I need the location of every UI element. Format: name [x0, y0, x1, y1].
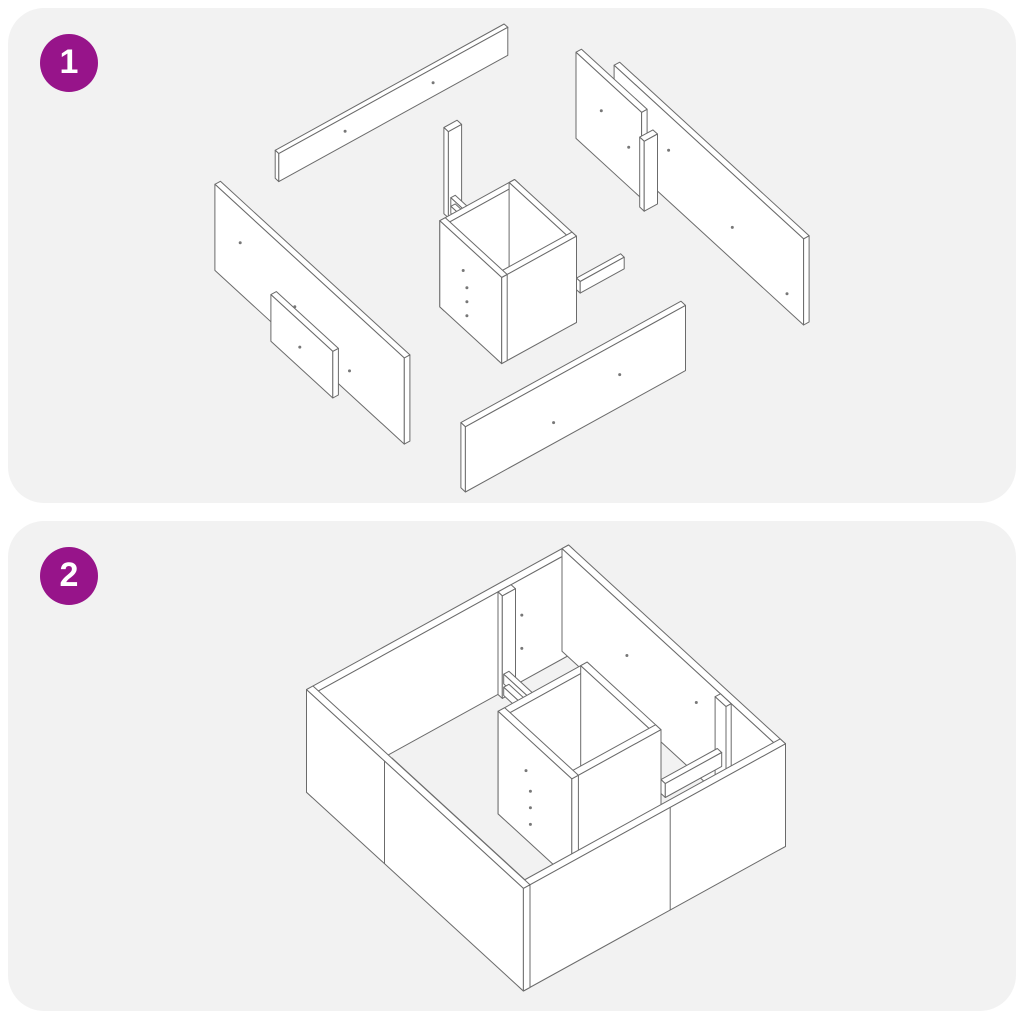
- step-1-panel: 1: [8, 8, 1016, 503]
- step-2-badge: 2: [40, 547, 98, 605]
- step-1-badge: 1: [40, 34, 98, 92]
- step-2-panel: 2: [8, 521, 1016, 1011]
- step-2-assembled-diagram: [214, 537, 878, 999]
- step-1-number: 1: [60, 45, 79, 79]
- step-2-number: 2: [60, 558, 79, 592]
- step-1-exploded-diagram: [184, 16, 840, 500]
- instruction-sheet: 1 2: [0, 0, 1024, 1024]
